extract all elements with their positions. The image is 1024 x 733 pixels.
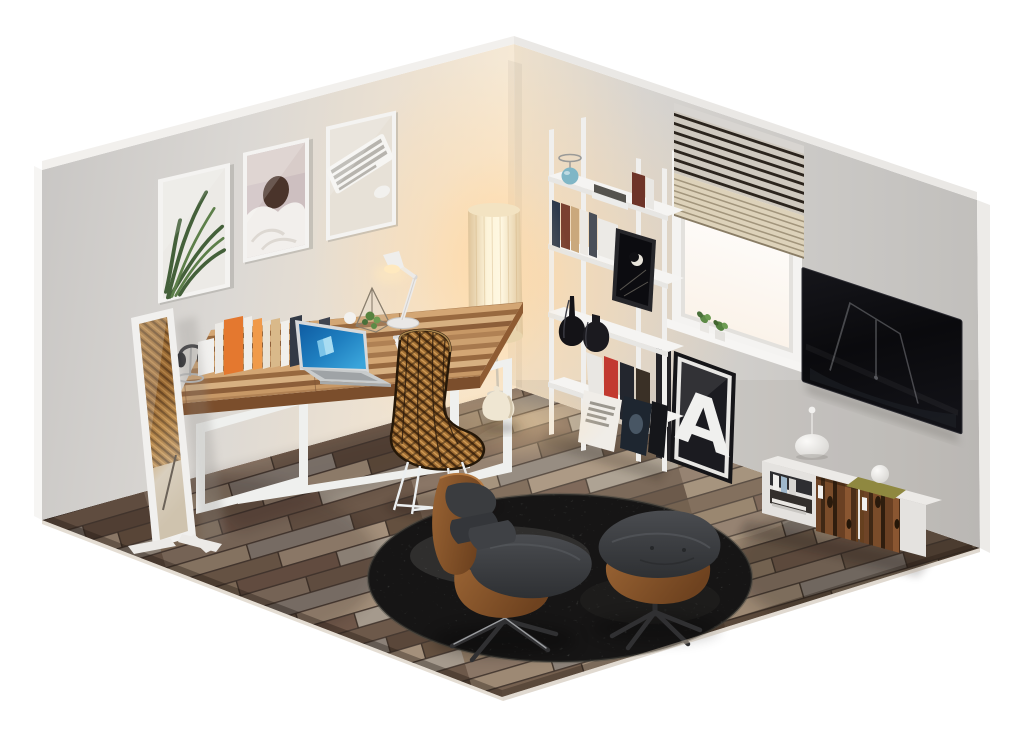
room-render: A [0,0,1024,733]
desk-ball-speaker [344,312,356,324]
teal-lamp-glass [562,168,579,185]
window [666,100,810,375]
wall-art-keyboard [325,110,398,243]
wall-cut-edge-left [34,166,42,520]
door-handle-left [818,485,823,499]
isometric-room-scene: A [0,0,1024,733]
door-handle-right [862,497,867,511]
ottoman [591,510,720,648]
wall-art-plant [158,162,234,306]
wall-art-bed [243,137,313,265]
shelf2-moon-frame [612,228,656,312]
